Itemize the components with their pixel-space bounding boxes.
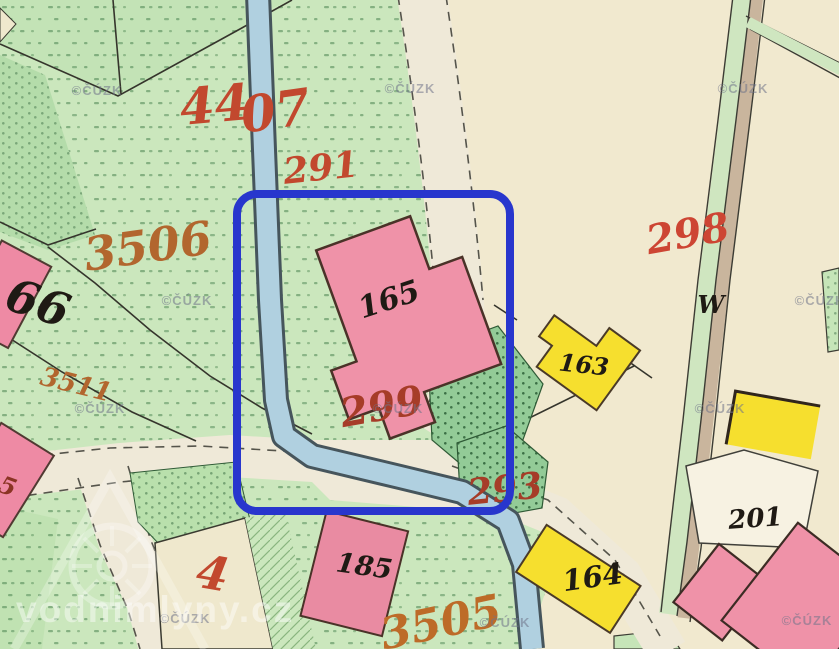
cuzk-watermark: ©ČÚZK [782, 613, 833, 628]
cuzk-watermark: ©ČÚZK [480, 615, 531, 630]
parcel-label-07: 07 [237, 77, 314, 145]
parcel-label-163: 163 [557, 348, 610, 382]
parcel-label-291: 291 [280, 143, 360, 193]
cuzk-watermark: ©ČÚZK [795, 293, 839, 308]
parcel-label-201: 201 [726, 502, 783, 536]
cadastral-map[interactable]: 44072913506351129929829343505566165163W2… [0, 0, 839, 649]
cuzk-watermark: ©ČÚZK [162, 293, 213, 308]
cuzk-watermark: ©ČÚZK [385, 81, 436, 96]
watermark-url: vodnimlyny.cz [16, 589, 294, 630]
cuzk-watermark: ©ČÚZK [718, 81, 769, 96]
cuzk-watermark: ©ČÚZK [75, 401, 126, 416]
cuzk-watermark: ©ČÚZK [373, 401, 424, 416]
parcel-label-W: W [698, 290, 727, 319]
map-viewport[interactable]: 44072913506351129929829343505566165163W2… [0, 0, 839, 649]
cuzk-watermark: ©ČÚZK [695, 401, 746, 416]
cuzk-watermark: ©ČÚZK [72, 83, 123, 98]
